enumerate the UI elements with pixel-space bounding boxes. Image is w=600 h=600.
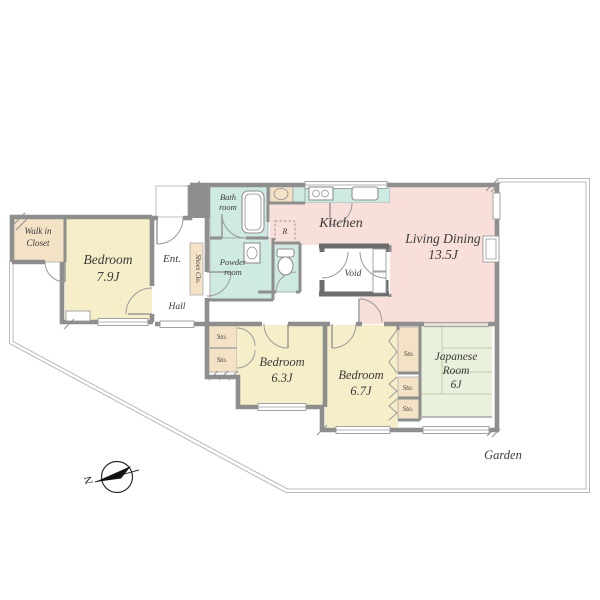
storage-label-3: Sto. xyxy=(404,351,415,358)
void-slide-panel-1 xyxy=(373,249,386,271)
bedroom79-sill-box xyxy=(66,311,90,321)
floor-plan: N Walk in Closet Bedroom 7.9J Ent. Shoes… xyxy=(0,0,600,600)
compass-north-label: N xyxy=(82,475,95,485)
refrigerator-label: R xyxy=(282,227,288,236)
bedroom-79-size: 7.9J xyxy=(97,269,121,284)
japanese-room-label-1: Japanese xyxy=(435,351,478,363)
hall-label: Hall xyxy=(168,302,186,312)
bedroom-79-label: Bedroom xyxy=(84,252,133,267)
japanese-room-label-2: Room xyxy=(442,365,470,377)
storage-label-2: Sto. xyxy=(217,357,228,364)
powder-room-label-1: Powder xyxy=(219,257,247,267)
walk-in-closet-label-2: Closet xyxy=(26,238,50,248)
kitchen-sink-icon xyxy=(352,187,378,200)
shoes-closet-label: Shoes Clo. xyxy=(194,254,201,283)
counter-top-2 xyxy=(293,185,305,203)
bedroom-63-label: Bedroom xyxy=(259,355,304,369)
toilet-bowl-icon xyxy=(278,257,293,275)
bedroom-63-size: 6.3J xyxy=(271,371,294,385)
storage-label-1: Sto. xyxy=(217,334,228,341)
garden-label: Garden xyxy=(484,448,522,462)
ld-window-box xyxy=(483,236,499,262)
bath-room-label-1: Bath xyxy=(220,192,236,202)
living-dining-size: 13.5J xyxy=(428,247,459,262)
living-dining-label: Living Dining xyxy=(404,231,481,246)
kitchen-label: Kitchen xyxy=(318,216,363,231)
powder-room-label-2: room xyxy=(224,267,242,277)
bedroom-67-label: Bedroom xyxy=(338,368,383,382)
bath-room-label-2: room xyxy=(219,202,237,212)
counter-top xyxy=(270,185,293,203)
japanese-room-size: 6J xyxy=(451,379,463,391)
ld-window-upper xyxy=(493,193,500,219)
porch-outline xyxy=(156,186,190,217)
wall-entry-top xyxy=(152,185,190,222)
entrance-door-arc xyxy=(157,218,183,244)
bedroom-67-size: 6.7J xyxy=(350,384,373,398)
toilet-tank-icon xyxy=(277,249,294,257)
storage-label-4: Sto. xyxy=(403,385,414,392)
compass: N xyxy=(82,462,139,493)
storage-tall-floor xyxy=(398,327,420,373)
hall-window xyxy=(160,321,194,328)
ld-entry-floor xyxy=(360,297,390,324)
storage-label-5: Sto. xyxy=(403,406,414,413)
powder-sink-icon xyxy=(244,243,260,263)
entrance-label: Ent. xyxy=(162,253,181,265)
walk-in-closet-label-1: Walk in xyxy=(25,226,52,236)
void-label: Void xyxy=(345,269,362,279)
